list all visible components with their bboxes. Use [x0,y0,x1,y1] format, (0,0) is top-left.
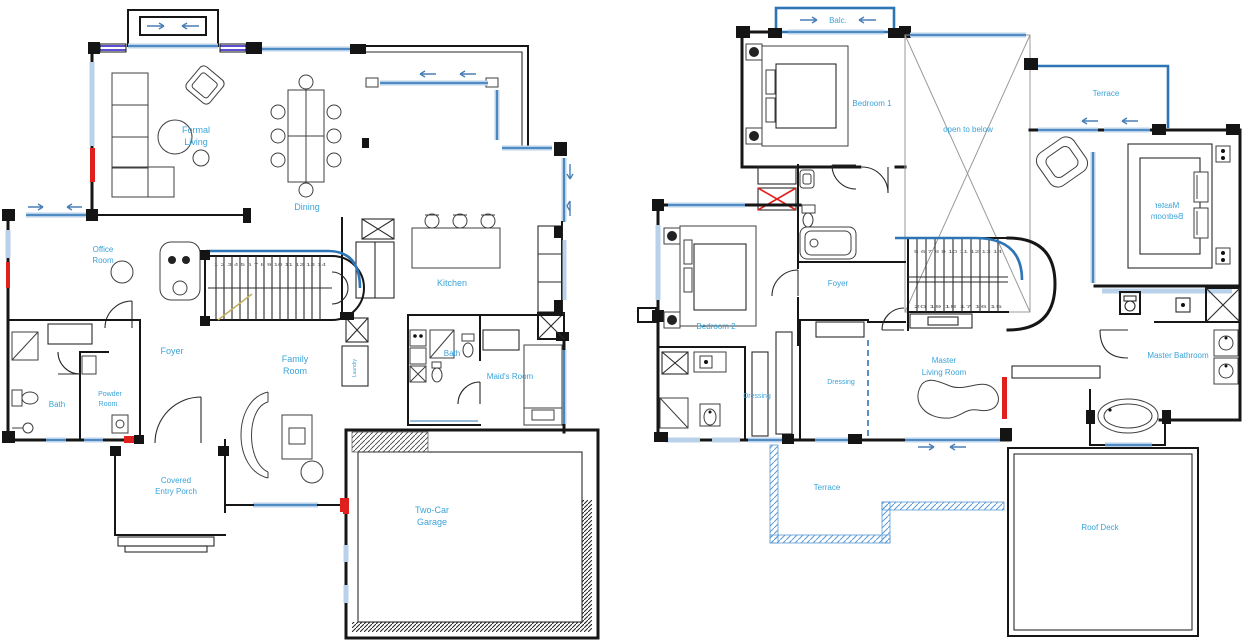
room-label-open-below: open to below [943,125,993,134]
front-bay-window [88,10,262,54]
room-label-powder-2: Room [99,401,118,408]
bath-door-arc [458,382,480,404]
room-label-bedroom2: Bedroom 2 [696,322,736,331]
stair-tread-numbers-upper: 5 6 7 8 9 10 11 12 13 14 [914,249,1003,254]
arrow-left-icon [460,71,476,77]
floor-plans-svg: Formal Living Dining Office Room [0,0,1249,643]
dressing-left: Dressing [743,332,792,436]
lower-bath [658,347,745,440]
room-label-dressing-left: Dressing [743,393,771,400]
shaft-cross-red [758,188,796,210]
open-to-below: open to below [905,35,1030,312]
room-label-terrace-top: Terrace [1093,89,1120,98]
desk-kidney [918,380,999,418]
roof-deck: Roof Deck [1008,448,1198,636]
foyer-closet-column [342,218,394,318]
svg-text:Master: Master [1154,201,1179,210]
arrow-up-icon [567,201,570,216]
bath-door-arc [832,165,856,189]
arrow-right-icon [918,444,934,450]
wall-accent-red [1002,377,1007,419]
bedroom1-door-arc [862,167,888,193]
wardrobe-hatch [776,332,792,434]
room-label-laundry: Laundry [352,358,358,377]
room-label-porch-2: Entry Porch [155,487,197,496]
dining-area: Dining [271,75,369,212]
wall-accent-red [6,262,10,288]
room-label-master-living: Master [932,356,957,365]
bath-door-arc [58,352,80,374]
arrow-right-icon [800,17,817,23]
room-label-bath: Bath [49,400,65,409]
office-room: Office Room [92,242,205,328]
bar-stools [425,214,495,228]
room-label-roof-deck: Roof Deck [1081,523,1119,532]
stair-handrail [895,238,1022,280]
room-label-family-2: Room [283,366,307,376]
closet-hatch [758,166,796,184]
bedroom-1: Bedroom 1 [736,26,911,193]
formal-living-room: Formal Living [93,64,251,223]
arrow-left-icon [420,71,436,77]
family-room: Family Room [225,354,347,512]
room-label-dressing-right: Dressing [827,379,855,386]
terrace-top: Terrace [1024,58,1240,135]
arrow-left-icon [1122,118,1138,124]
arrow-left-icon [859,17,876,23]
wall-accent-red [343,498,349,514]
room-label-balcony: Balc. [829,16,847,25]
room-label-foyer: Foyer [160,346,183,356]
bedroom-2: Bedroom 2 [638,199,800,345]
laundry-chute: Laundry [340,312,368,386]
room-label-master-living-2: Living Room [922,368,967,377]
room-label-formal-living-2: Living [184,137,208,147]
master-bathroom: Master Bathroom [1086,288,1240,445]
floor-plan-canvas: Formal Living Dining Office Room [0,0,1249,643]
arrow-right-icon [28,204,43,210]
maids-room: Maid's Room [483,330,562,425]
room-label-kitchen: Kitchen [437,278,467,288]
wall-accent-red [90,148,95,182]
room-label-garage-2: Garage [417,517,447,527]
louver-window [220,44,246,52]
balustrade-hatch [1012,366,1100,378]
wardrobe-hatch [483,330,519,350]
arrow-left-icon [950,444,966,450]
powder-room: Powder Room [80,352,128,433]
garage-wall-hatch [582,500,592,626]
kitchen: Kitchen [412,214,564,339]
two-car-garage: Two-Car Garage [343,430,598,638]
garage-step-hatch [352,432,428,452]
ground-stairs: 1 2 3 4 5 6 7 8 9 10 11 12 13 14 [200,250,364,326]
room-label-master-bedroom-mirrored: Master Bedroom [1150,201,1183,221]
master-living-room: Master Living Room [868,308,1100,419]
first-floor-plan: Balc. Bedroom 1 open to below Terrace [638,8,1240,636]
office-chair [111,261,133,283]
bathroom-door-arc [1100,330,1128,358]
room-label-dining: Dining [294,202,320,212]
balcony: Balc. [768,8,904,38]
arrow-left-icon [67,204,82,210]
room-label-foyer-first: Foyer [828,279,849,288]
stair-tread-numbers-lower: 20 19 18 17 16 15 [914,304,1003,309]
room-label-master-bathroom: Master Bathroom [1147,351,1209,360]
room-label-bath-mid: Bath [444,349,460,358]
room-label-office-2: Room [92,256,114,265]
arrow-left-icon [182,23,199,29]
bedroom2-door-arc [772,270,798,296]
master-bedroom: Master Bedroom [1033,130,1240,420]
upper-bath [758,165,905,262]
wardrobe-hatch [816,322,864,337]
room-label-bedroom1: Bedroom 1 [852,99,892,108]
armchair [1033,133,1092,191]
wall-accent-red [124,436,134,443]
room-label-garage: Two-Car [415,505,449,515]
room-label-porch: Covered [161,476,191,485]
room-label-family: Family [282,354,309,364]
arrow-right-icon [147,23,164,29]
garage-wall-hatch [352,622,592,632]
arrow-down-icon [567,164,573,179]
stair-break-line [218,294,252,320]
stair-tread-numbers: 1 2 3 4 5 6 7 8 9 10 11 12 13 14 [214,262,327,267]
room-label-formal-living: Formal [182,125,210,135]
armchair [184,64,226,106]
first-floor-bottom-wall [654,345,1012,450]
terrace-bottom: Terrace [770,445,1004,543]
room-label-maids: Maid's Room [487,372,534,381]
first-floor-stairs: 5 6 7 8 9 10 11 12 13 14 20 19 18 17 16 … [895,238,1055,330]
svg-text:Bedroom: Bedroom [1150,212,1183,221]
room-label-terrace-bottom: Terrace [814,483,841,492]
room-label-powder: Powder [98,391,122,398]
room-label-office: Office [93,245,114,254]
louver-window [100,44,126,52]
office-door-arc [105,301,132,328]
arrow-left-icon [1082,118,1098,124]
ground-floor-plan: Formal Living Dining Office Room [2,10,598,638]
living-door-arc [882,308,904,330]
dressing-right: Dressing [800,320,868,440]
entry-door-arc [155,397,201,443]
closet-hatch [48,324,92,344]
